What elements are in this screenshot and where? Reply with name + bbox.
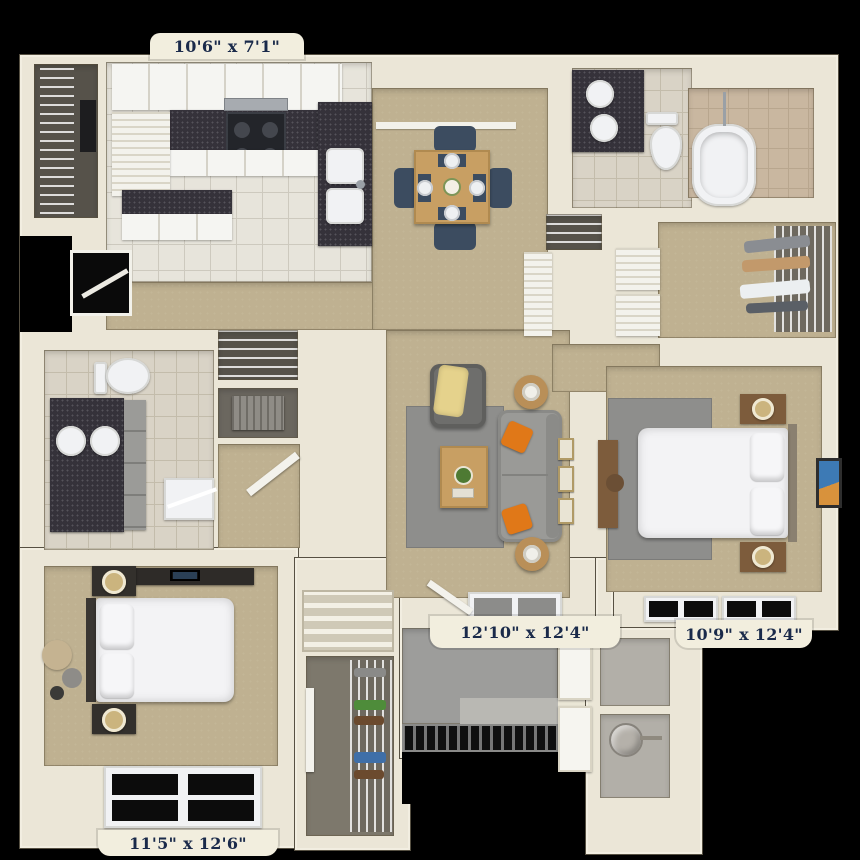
exterior-notch [20, 236, 72, 332]
window-pane [762, 601, 791, 617]
window-pane [649, 601, 678, 617]
bedroom-right-window [644, 596, 718, 622]
water-heater-pipe [640, 736, 662, 740]
entry-void [402, 752, 558, 804]
dimension-text: 10'9" x 12'4" [685, 625, 803, 644]
bed-pillow [100, 653, 134, 698]
microwave [224, 98, 288, 111]
dimension-label-bedroom-left: 11'5" x 12'6" [98, 830, 278, 856]
side-table-lamp [522, 383, 540, 401]
bed-pillow [750, 487, 784, 535]
window-pane [684, 601, 713, 617]
shoes [354, 716, 384, 725]
wall-circle-decor [42, 640, 72, 670]
window-pane [727, 601, 756, 617]
gallery-frame [558, 498, 574, 524]
breakfast-bar-counter [122, 190, 232, 214]
laundry-wire-shelving [40, 68, 74, 214]
dimension-label-kitchen: 10'6" x 7'1" [150, 33, 304, 59]
dimension-text: 11'5" x 12'6" [129, 834, 247, 853]
shower [164, 478, 214, 520]
laundry-appliance [80, 100, 96, 152]
bath-top-sink [586, 80, 614, 108]
pantry-doors [112, 112, 170, 196]
sofa-seam [502, 474, 548, 476]
plate [417, 180, 433, 196]
bath-left-sink [56, 426, 86, 456]
tub-interior [700, 132, 748, 198]
utility-door [558, 706, 592, 772]
gallery-frame [558, 438, 574, 460]
patio-door-opening [70, 250, 132, 316]
bed-headboard [86, 598, 96, 702]
shoes [354, 700, 386, 710]
table-lamp [102, 708, 126, 732]
bath-left-vanity [50, 398, 124, 532]
dimension-label-living-room: 12'10" x 12'4" [430, 616, 620, 648]
dining-chair [434, 222, 476, 250]
shower-door [167, 487, 217, 509]
wall-circle-decor [50, 686, 64, 700]
plate [444, 153, 460, 169]
burner [234, 122, 250, 138]
shower-pipe [723, 92, 726, 126]
bedroom-left-window [104, 766, 262, 828]
entry-step [460, 698, 558, 724]
dimension-text: 12'10" x 12'4" [460, 623, 589, 642]
bed-pillow [750, 433, 784, 481]
patio-door-leaf [81, 268, 129, 298]
tray [452, 488, 474, 498]
staircase [302, 590, 394, 652]
bathtub [692, 124, 756, 206]
floor-plan: 10'6" x 7'1" 12'10" x 12'4" 10'9" x 12'4… [0, 0, 860, 860]
desk-chair [606, 474, 624, 492]
dining-chair [488, 168, 512, 208]
wall-circle-decor [62, 668, 82, 688]
window-pane [474, 598, 512, 616]
toilet-bowl [106, 358, 150, 394]
kitchen-sink-basin [326, 188, 364, 224]
entry-grate [402, 724, 558, 752]
water-heater [609, 723, 643, 757]
bed-headboard [788, 424, 797, 542]
dimension-text: 10'6" x 7'1" [174, 37, 280, 56]
shoe-closet-door-frame [306, 688, 314, 772]
plant [456, 468, 471, 483]
kitchen-lower-cabinets [170, 150, 342, 176]
plate [444, 205, 460, 221]
toilet-tank [94, 362, 107, 394]
shoes [354, 770, 384, 779]
bedroom-right-window [722, 596, 796, 622]
tv-screen [173, 572, 197, 579]
table-lamp [752, 546, 774, 568]
linen-tower [124, 400, 146, 530]
breakfast-bar-front [122, 214, 232, 240]
table-lamp [752, 398, 774, 420]
toilet-tank [646, 112, 678, 125]
dining-table [414, 150, 490, 224]
table-lamp [102, 570, 126, 594]
kitchen-sink-basin [326, 148, 364, 184]
utility-storage-floor [600, 638, 670, 706]
kitchen-faucet [356, 180, 365, 189]
closet-double-door [616, 294, 660, 336]
hall-closet-doors [524, 252, 552, 336]
dimension-label-bedroom-right: 10'9" x 12'4" [676, 620, 812, 648]
shoes [354, 752, 386, 763]
window-pane [188, 774, 254, 795]
shoes [354, 668, 386, 677]
gallery-frame [558, 466, 574, 492]
closet-double-door [616, 248, 660, 290]
hvac-unit [232, 396, 284, 430]
burner [262, 122, 278, 138]
hall-wire-closet [218, 330, 298, 380]
bed-pillow [100, 604, 134, 649]
bath-left-sink [90, 426, 120, 456]
hallway-floor [106, 282, 388, 330]
window-pane [112, 800, 178, 821]
dining-chair [434, 126, 476, 152]
centerpiece-flowers [445, 180, 459, 194]
linen-closet [546, 214, 602, 250]
window-pane [112, 774, 178, 795]
side-table-lamp [523, 545, 541, 563]
tv [170, 570, 200, 581]
window-pane [518, 598, 556, 616]
shoe-closet-rack [350, 660, 392, 832]
wall-art [816, 458, 842, 508]
bath-top-sink [590, 114, 618, 142]
window-pane [188, 800, 254, 821]
plate [469, 180, 485, 196]
